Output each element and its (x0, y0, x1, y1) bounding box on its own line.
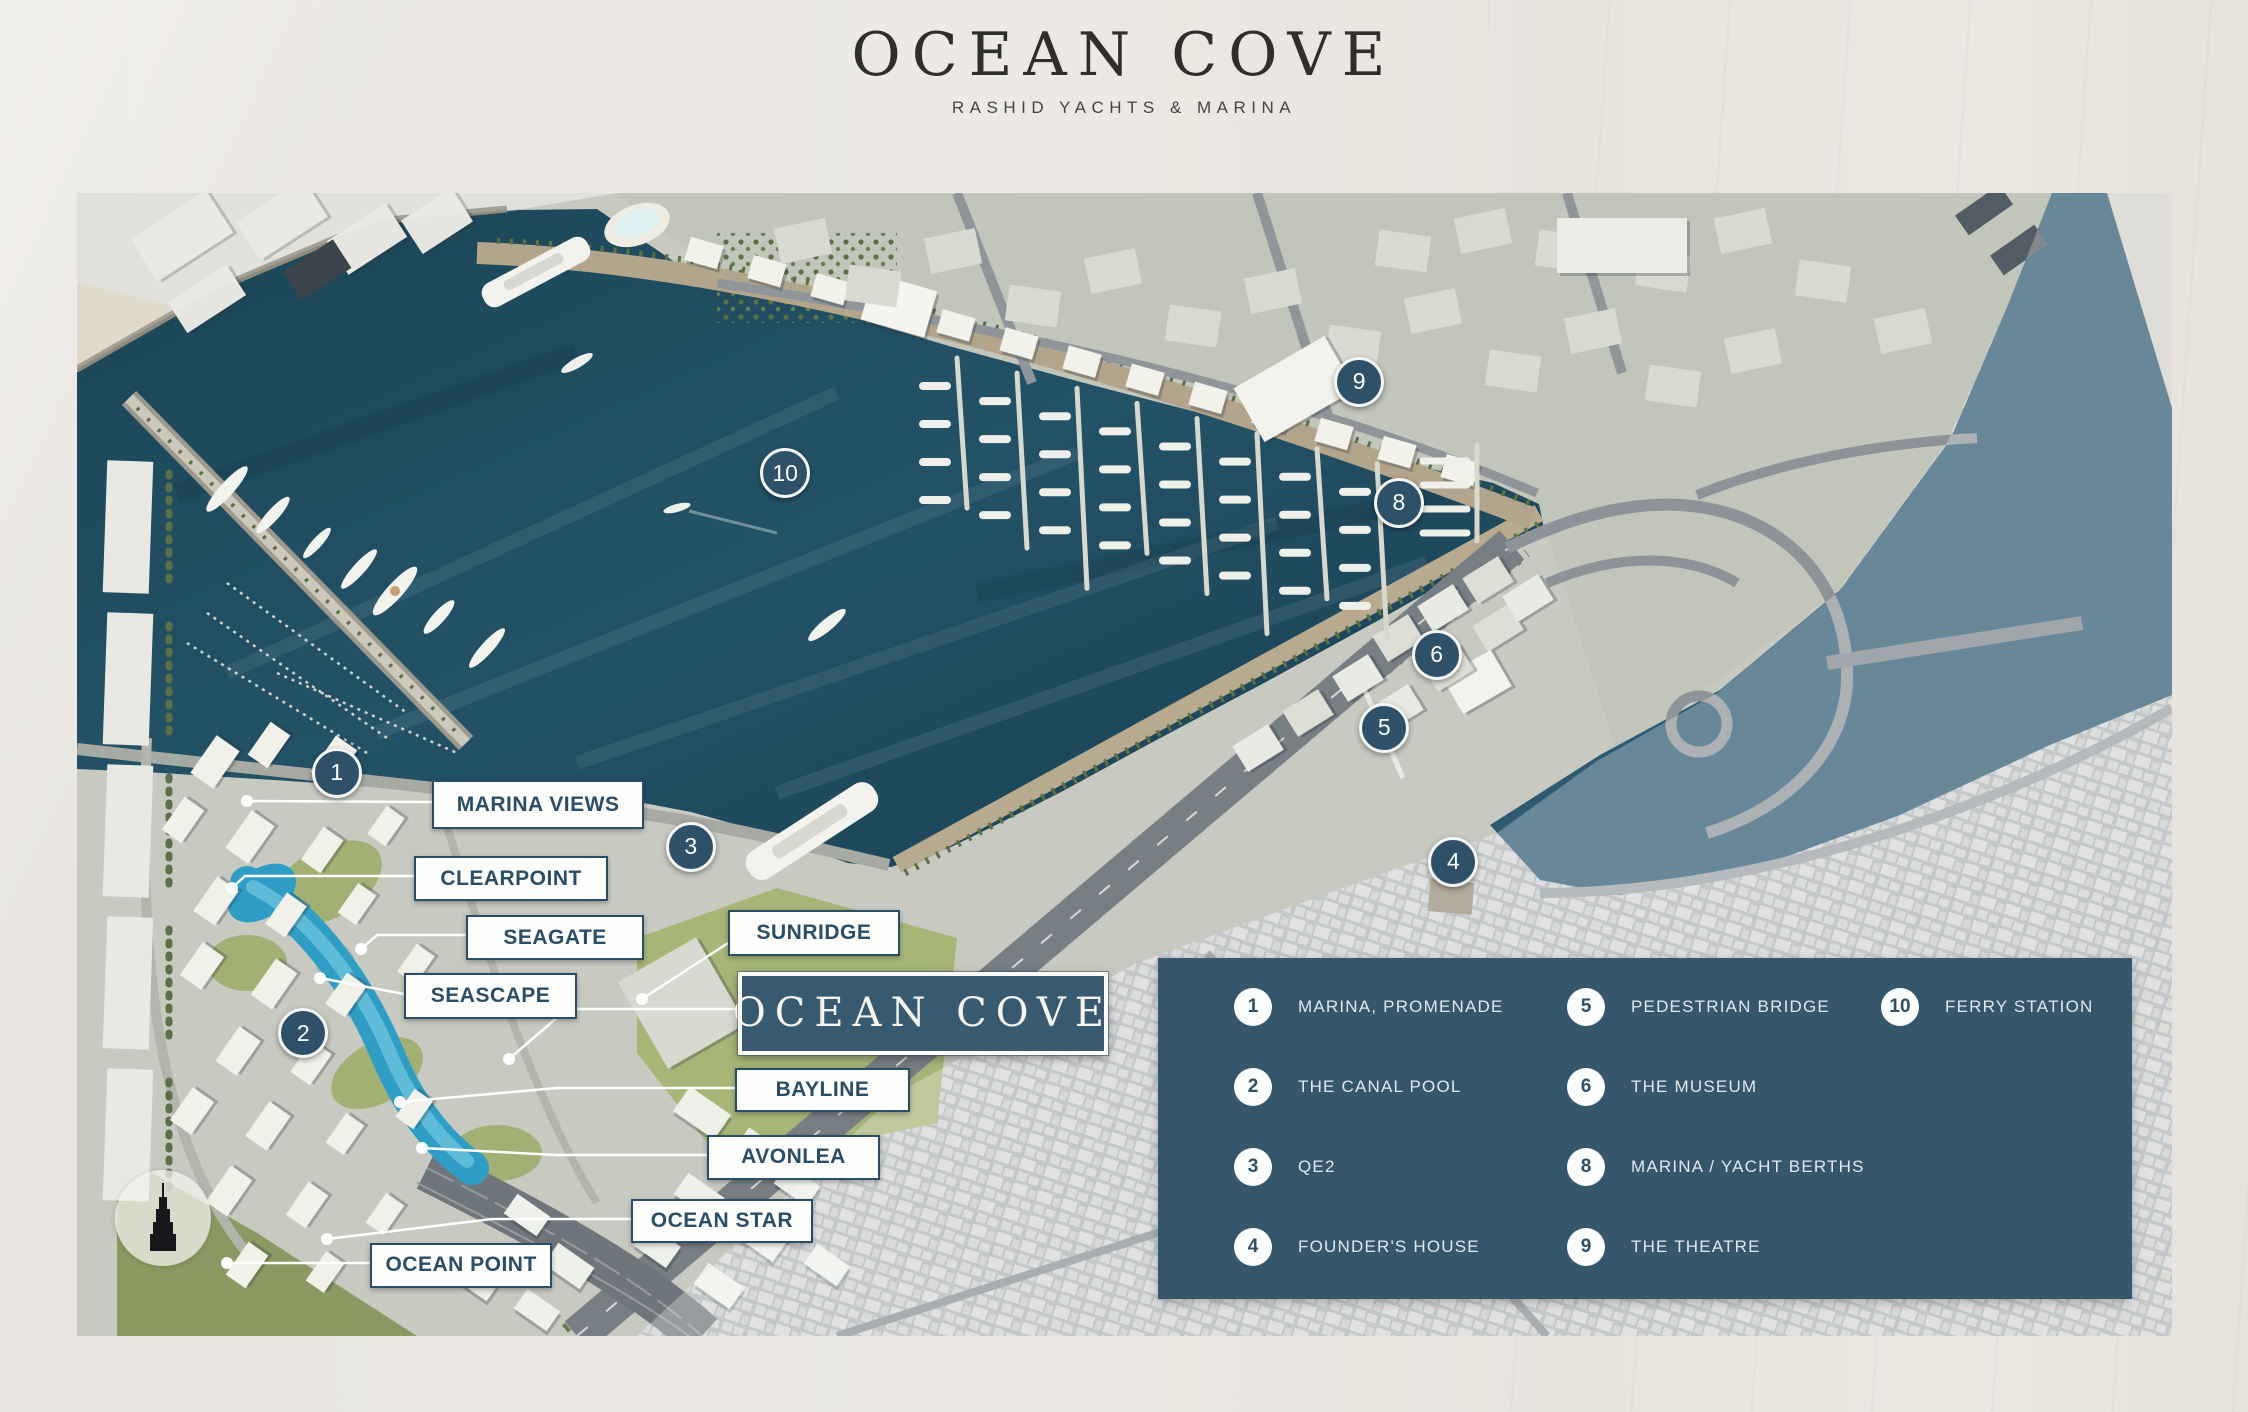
legend-number-badge: 2 (1234, 1068, 1272, 1106)
legend-item-1: 1MARINA, PROMENADE (1234, 988, 1504, 1026)
map-legend: 1MARINA, PROMENADE2THE CANAL POOL3QE24FO… (1158, 958, 2132, 1299)
legend-number-badge: 4 (1234, 1228, 1272, 1266)
map-marker-10: 10 (760, 448, 810, 498)
legend-item-8: 8MARINA / YACHT BERTHS (1567, 1148, 1865, 1186)
project-label-ocean-cove: OCEAN COVE (738, 972, 1108, 1055)
legend-item-3: 3QE2 (1234, 1148, 1504, 1186)
map-marker-1: 1 (312, 748, 362, 798)
legend-number-badge: 10 (1881, 988, 1919, 1026)
map-marker-8: 8 (1374, 478, 1424, 528)
map-marker-6: 6 (1412, 630, 1462, 680)
legend-number-badge: 6 (1567, 1068, 1605, 1106)
legend-item-label: MARINA / YACHT BERTHS (1631, 1157, 1865, 1177)
legend-item-6: 6THE MUSEUM (1567, 1068, 1865, 1106)
map-marker-5: 5 (1359, 703, 1409, 753)
legend-item-4: 4FOUNDER'S HOUSE (1234, 1228, 1504, 1266)
legend-number-badge: 5 (1567, 988, 1605, 1026)
map-marker-4: 4 (1428, 837, 1478, 887)
project-label-text: OCEAN COVE (733, 990, 1113, 1036)
legend-item-label: MARINA, PROMENADE (1298, 997, 1504, 1017)
page-title: OCEAN COVE (0, 0, 2248, 88)
legend-item-2: 2THE CANAL POOL (1234, 1068, 1504, 1106)
legend-item-label: FERRY STATION (1945, 997, 2093, 1017)
legend-item-9: 9THE THEATRE (1567, 1228, 1865, 1266)
legend-column-1: 1MARINA, PROMENADE2THE CANAL POOL3QE24FO… (1234, 988, 1504, 1266)
legend-item-label: QE2 (1298, 1157, 1336, 1177)
map-marker-2: 2 (278, 1008, 328, 1058)
legend-item-10: 10FERRY STATION (1881, 988, 2093, 1026)
map-marker-9: 9 (1334, 357, 1384, 407)
legend-number-badge: 8 (1567, 1148, 1605, 1186)
map-marker-3: 3 (666, 822, 716, 872)
masterplan-map: MARINA VIEWSCLEARPOINTSEAGATESUNRIDGESEA… (77, 193, 2172, 1336)
burj-khalifa-icon (115, 1170, 211, 1266)
legend-number-badge: 9 (1567, 1228, 1605, 1266)
legend-item-label: THE CANAL POOL (1298, 1077, 1462, 1097)
legend-item-5: 5PEDESTRIAN BRIDGE (1567, 988, 1865, 1026)
legend-item-label: PEDESTRIAN BRIDGE (1631, 997, 1830, 1017)
page-subtitle: RASHID YACHTS & MARINA (0, 98, 2248, 118)
legend-item-label: THE MUSEUM (1631, 1077, 1757, 1097)
legend-item-label: THE THEATRE (1631, 1237, 1761, 1257)
legend-column-3: 10FERRY STATION (1881, 988, 2093, 1026)
header: OCEAN COVE RASHID YACHTS & MARINA (0, 0, 2248, 118)
legend-column-2: 5PEDESTRIAN BRIDGE6THE MUSEUM8MARINA / Y… (1567, 988, 1865, 1266)
legend-number-badge: 1 (1234, 988, 1272, 1026)
legend-number-badge: 3 (1234, 1148, 1272, 1186)
legend-item-label: FOUNDER'S HOUSE (1298, 1237, 1480, 1257)
